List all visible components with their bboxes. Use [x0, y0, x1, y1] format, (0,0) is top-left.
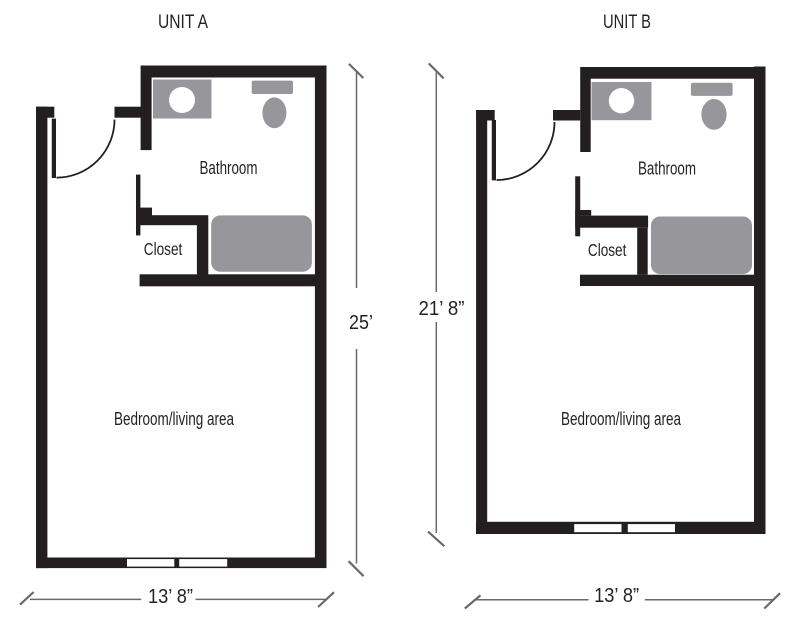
svg-text:UNIT B: UNIT B	[603, 11, 651, 33]
svg-text:Closet: Closet	[144, 239, 183, 259]
svg-text:13’ 8”: 13’ 8”	[148, 586, 193, 608]
svg-text:Bedroom/living area: Bedroom/living area	[114, 409, 235, 429]
svg-text:Bedroom/living area: Bedroom/living area	[561, 409, 682, 429]
svg-text:21’ 8”: 21’ 8”	[419, 298, 465, 320]
svg-text:UNIT A: UNIT A	[158, 11, 208, 33]
svg-text:25’: 25’	[349, 312, 373, 334]
svg-text:Closet: Closet	[588, 240, 627, 260]
svg-text:13’ 8”: 13’ 8”	[594, 585, 639, 607]
svg-text:Bathroom: Bathroom	[638, 158, 696, 178]
svg-text:Bathroom: Bathroom	[200, 158, 258, 178]
